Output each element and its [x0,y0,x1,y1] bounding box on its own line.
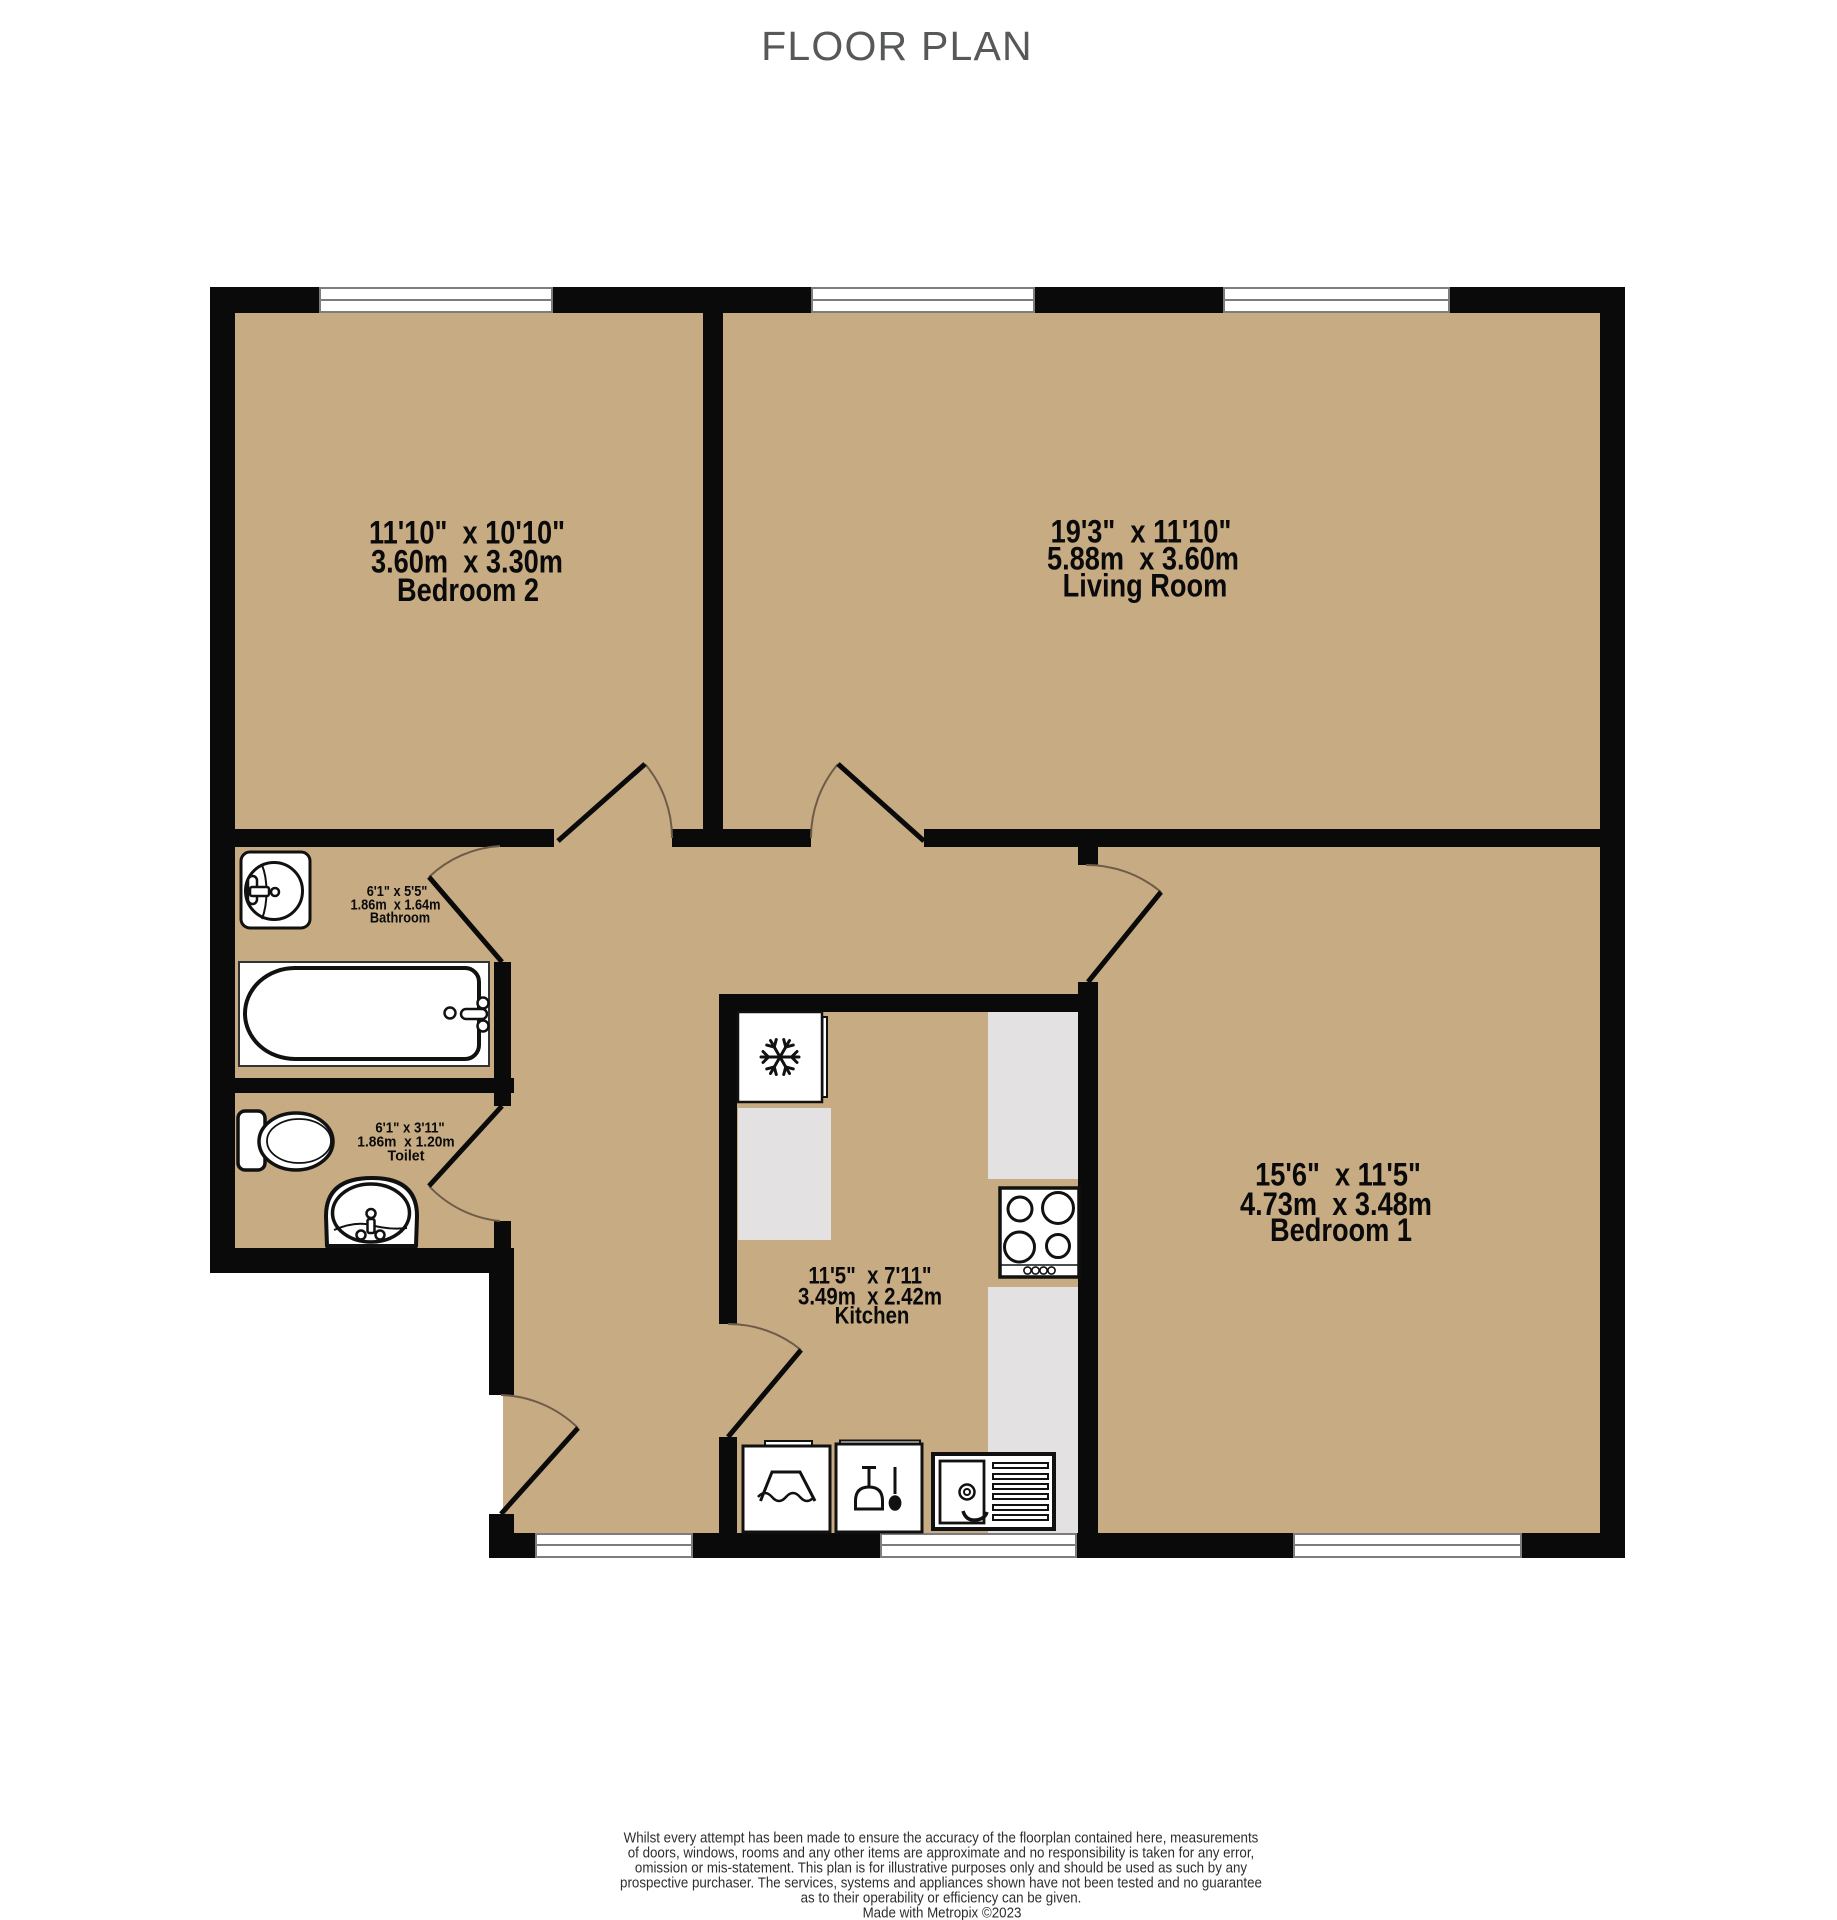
svg-text:Bedroom 1: Bedroom 1 [1270,1213,1412,1249]
svg-text:Toilet: Toilet [388,1148,425,1164]
svg-text:Bathroom: Bathroom [370,908,430,925]
svg-text:Living Room: Living Room [1063,568,1228,604]
svg-text:Bedroom 2: Bedroom 2 [397,573,539,609]
svg-text:Made with Metropix ©2023: Made with Metropix ©2023 [863,1905,1022,1920]
svg-text:Kitchen: Kitchen [835,1302,910,1329]
